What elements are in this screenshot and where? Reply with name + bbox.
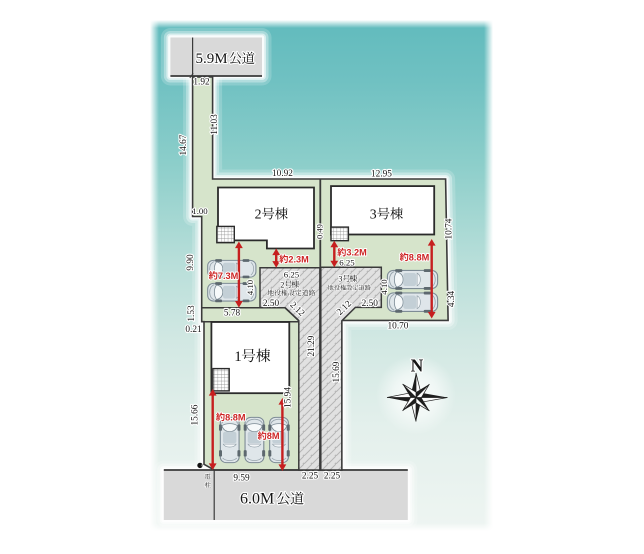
svg-text:21.29: 21.29: [307, 335, 317, 356]
svg-text:9.59: 9.59: [233, 474, 250, 484]
svg-text:0.21: 0.21: [185, 325, 202, 335]
svg-text:3: 3: [338, 275, 342, 284]
svg-text:N: N: [411, 356, 424, 376]
svg-text:6.25: 6.25: [284, 270, 300, 280]
svg-text:6.0M: 6.0M: [240, 491, 274, 508]
svg-text:2.3M: 2.3M: [288, 254, 309, 264]
svg-text:2.50: 2.50: [263, 299, 280, 309]
svg-text:10.92: 10.92: [272, 169, 293, 179]
svg-text:10.74: 10.74: [444, 218, 454, 239]
svg-text:14.67: 14.67: [179, 134, 189, 155]
svg-text:2: 2: [280, 280, 284, 289]
svg-text:3.2M: 3.2M: [346, 248, 367, 258]
svg-text:1.00: 1.00: [192, 206, 208, 216]
svg-text:2.25: 2.25: [324, 472, 341, 482]
svg-text:9.90: 9.90: [186, 254, 196, 271]
svg-text:15.69: 15.69: [332, 361, 342, 382]
svg-text:2.50: 2.50: [362, 299, 379, 309]
svg-text:1.92: 1.92: [193, 78, 210, 88]
svg-text:5.78: 5.78: [224, 309, 241, 319]
svg-text:6.25: 6.25: [339, 257, 355, 267]
svg-text:7.3M: 7.3M: [218, 271, 239, 281]
svg-text:15.66: 15.66: [191, 404, 201, 425]
svg-text:8.8M: 8.8M: [409, 252, 430, 262]
svg-text:11.03: 11.03: [210, 114, 220, 135]
svg-text:15.94: 15.94: [283, 387, 293, 408]
svg-text:4.34: 4.34: [447, 291, 457, 308]
svg-text:0.49: 0.49: [314, 224, 324, 239]
svg-text:1.53: 1.53: [187, 305, 197, 322]
svg-text:8M: 8M: [267, 431, 280, 441]
svg-text:3: 3: [370, 207, 377, 222]
svg-text:5.9M: 5.9M: [196, 51, 228, 67]
svg-text:10.70: 10.70: [388, 322, 409, 332]
svg-text:4.10: 4.10: [245, 279, 255, 295]
svg-text:2.25: 2.25: [302, 472, 319, 482]
svg-text:4.10: 4.10: [379, 279, 389, 295]
svg-text:12.95: 12.95: [371, 170, 392, 180]
svg-text:2: 2: [255, 207, 262, 222]
svg-text:1: 1: [234, 349, 242, 365]
svg-text:8.8M: 8.8M: [225, 412, 246, 422]
